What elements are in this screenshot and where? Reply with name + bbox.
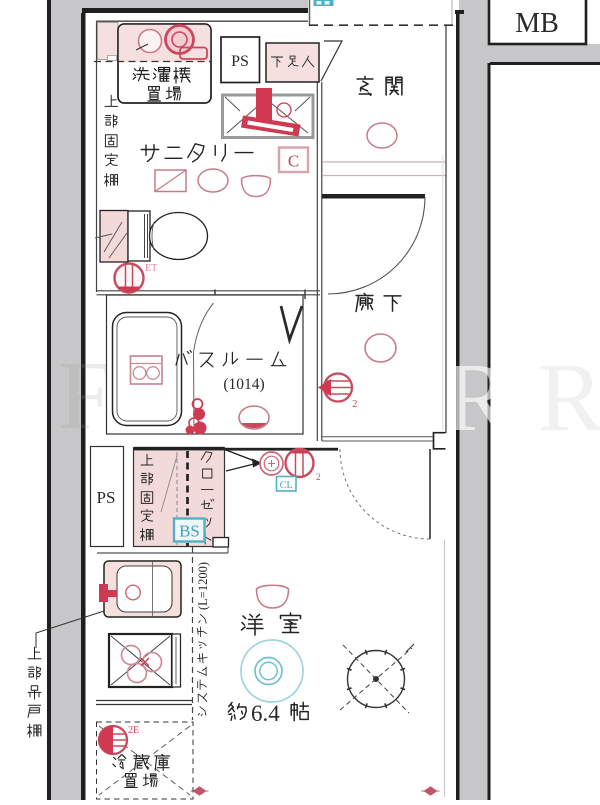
svg-text:2: 2 (352, 398, 358, 410)
svg-text:PS: PS (231, 53, 249, 70)
svg-text:RI: RI (538, 344, 600, 452)
svg-text:ET: ET (145, 263, 157, 274)
svg-text:2: 2 (316, 472, 321, 482)
svg-text:CL: CL (280, 480, 293, 491)
svg-text:2E: 2E (128, 725, 139, 736)
svg-text:MB: MB (515, 8, 559, 39)
svg-text:C: C (288, 152, 299, 171)
svg-text:(1014): (1014) (223, 376, 264, 393)
svg-text:PS: PS (97, 488, 116, 507)
svg-text:F: F (58, 342, 113, 450)
svg-text:R: R (445, 344, 511, 452)
svg-text:6.4: 6.4 (251, 701, 280, 726)
svg-text:(L=1200): (L=1200) (196, 562, 210, 610)
svg-text:BS: BS (179, 522, 200, 541)
